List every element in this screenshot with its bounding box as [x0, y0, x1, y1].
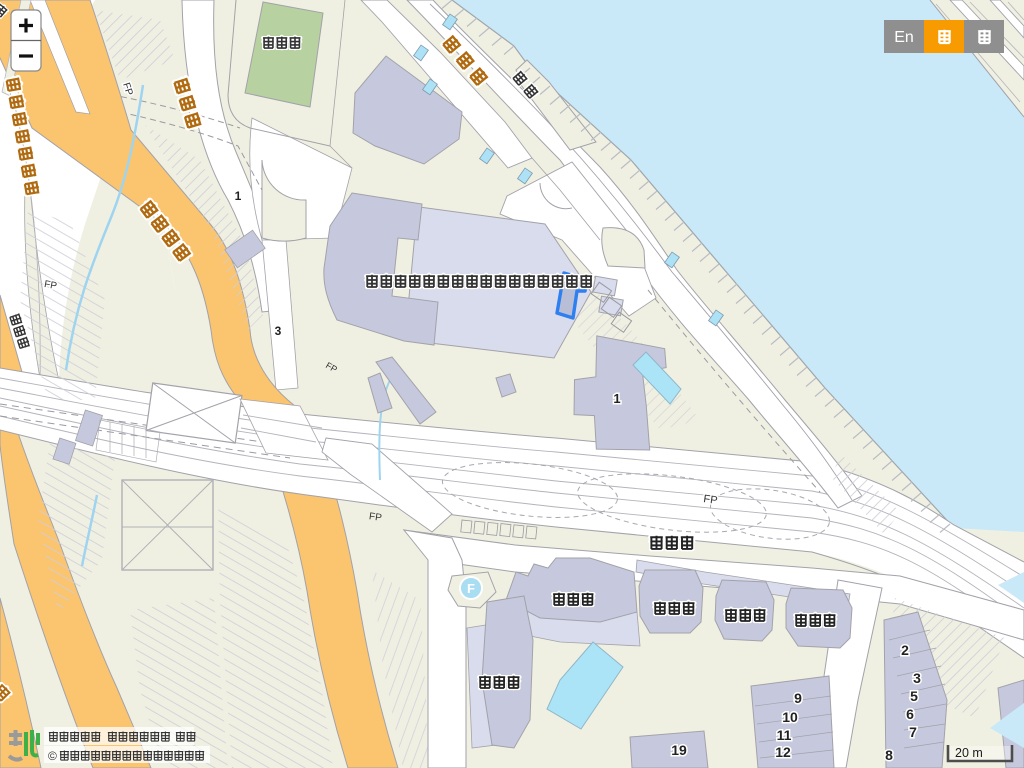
svg-text:19: 19: [671, 742, 687, 758]
svg-text:En: En: [894, 29, 914, 46]
svg-text:F: F: [467, 581, 475, 596]
svg-text:5: 5: [910, 688, 918, 704]
svg-text:2: 2: [901, 642, 909, 658]
svg-text:FP: FP: [703, 493, 719, 507]
svg-text:FP: FP: [368, 511, 383, 524]
svg-text:6: 6: [906, 706, 914, 722]
svg-text:7: 7: [909, 724, 917, 740]
svg-text:3: 3: [275, 324, 282, 338]
svg-text:1: 1: [613, 391, 620, 406]
svg-text:©: ©: [48, 749, 57, 763]
svg-text:12: 12: [775, 744, 791, 760]
svg-text:8: 8: [885, 747, 893, 763]
svg-text:3: 3: [913, 670, 921, 686]
svg-text:1: 1: [235, 189, 242, 203]
svg-text:FP: FP: [43, 279, 58, 292]
svg-text:11: 11: [777, 727, 792, 743]
svg-text:20 m: 20 m: [955, 746, 983, 760]
svg-text:10: 10: [782, 709, 798, 725]
svg-text:9: 9: [794, 690, 802, 706]
